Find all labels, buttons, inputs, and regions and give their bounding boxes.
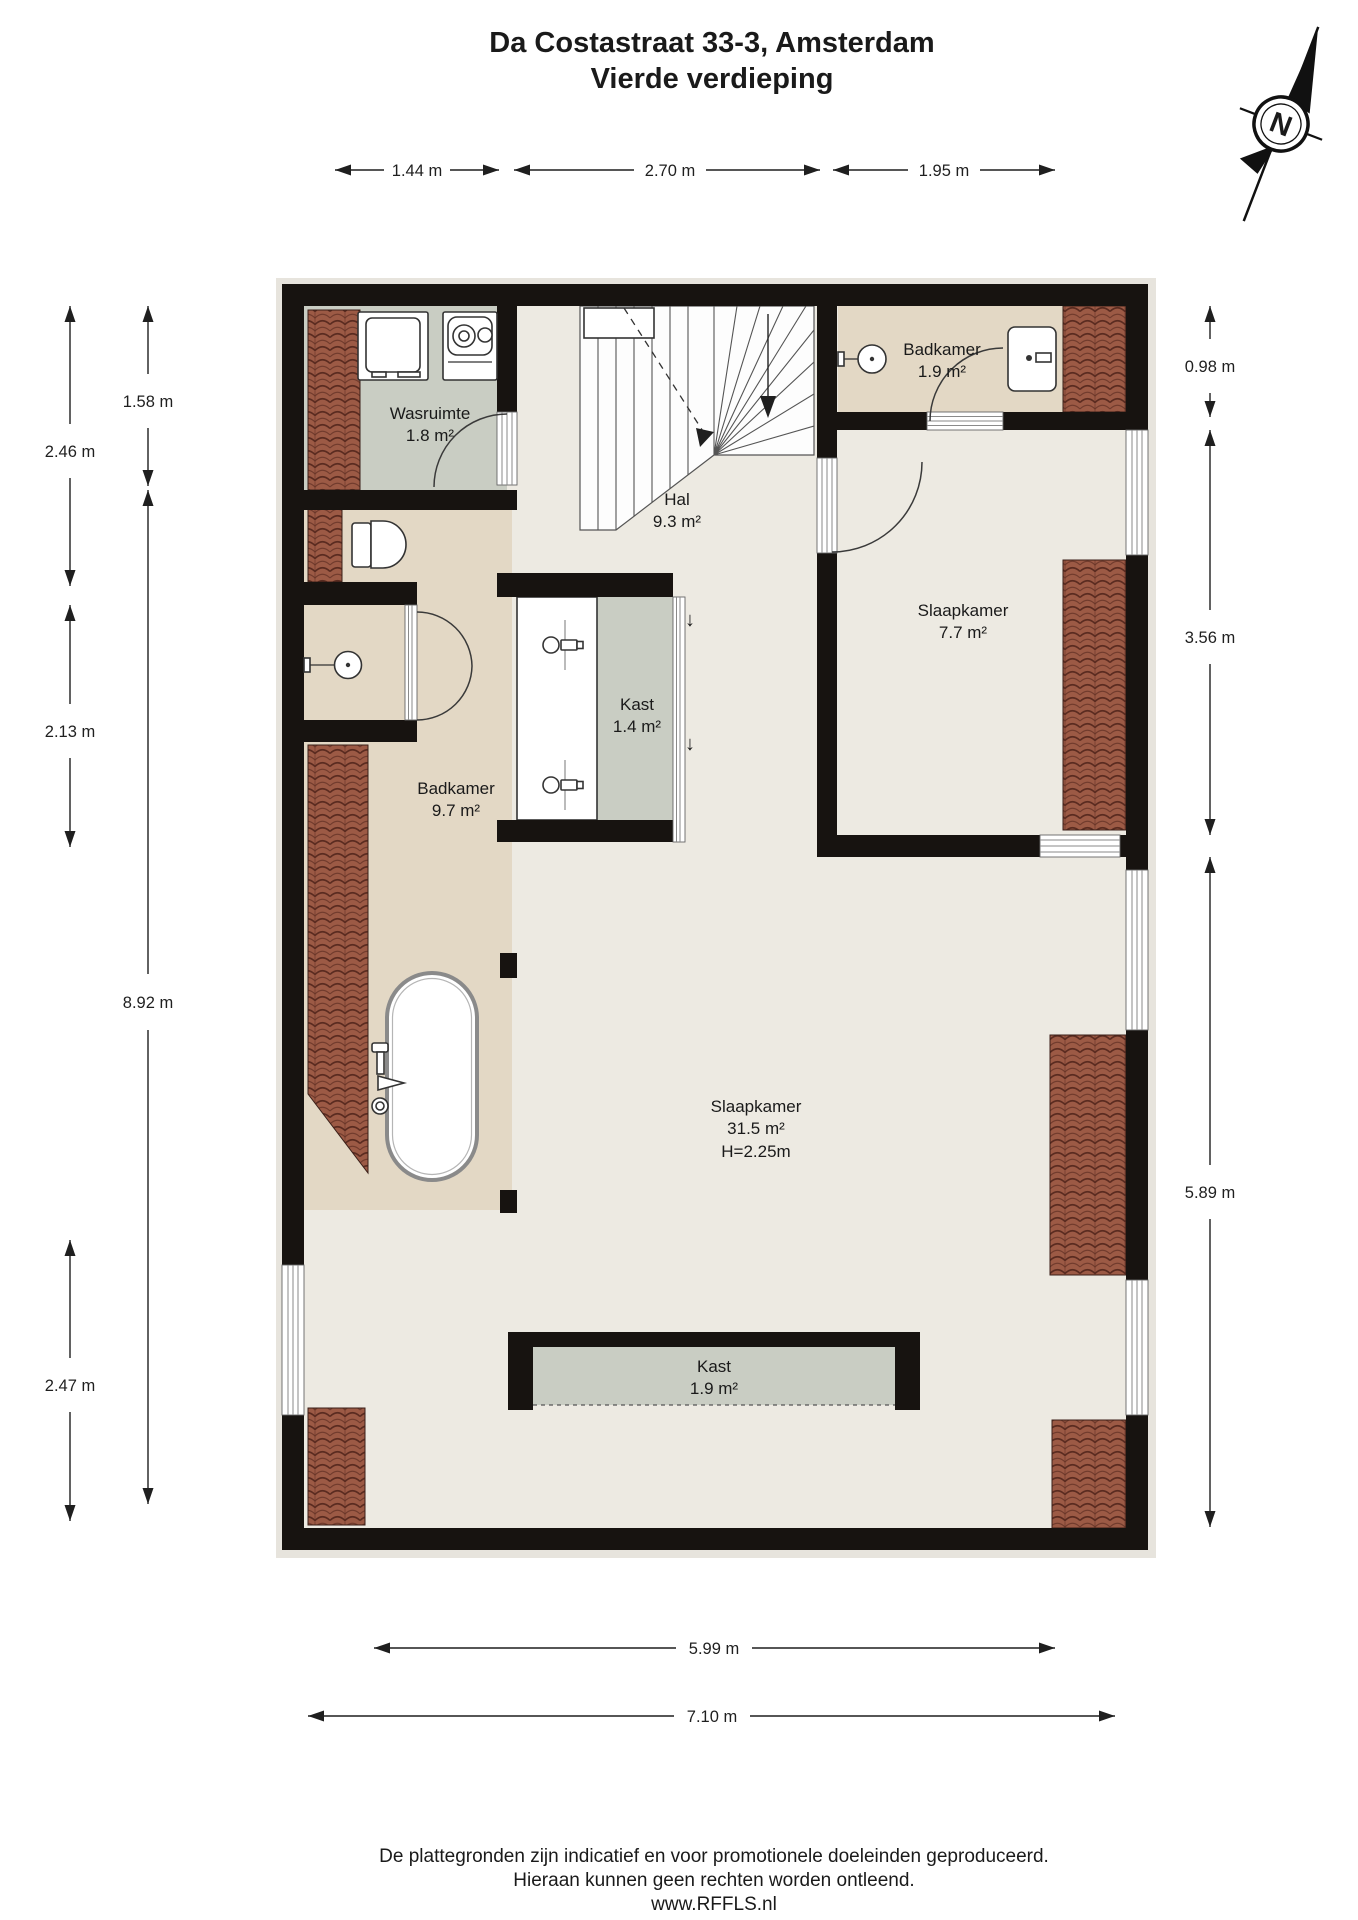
compass-west-tick (1240, 108, 1257, 114)
page-subtitle: Vierde verdieping (591, 63, 834, 95)
wall-hal-slaapkamer-lower (817, 553, 837, 857)
footer-line-2: Hieraan kunnen geen rechten worden ontle… (513, 1870, 914, 1891)
label-badkamer-groot-name: Badkamer (417, 779, 495, 798)
compass-rose: N (1203, 11, 1358, 237)
label-slaapkamer-groot-height: H=2.25m (721, 1142, 790, 1161)
dim-left-outer-3: 2.47 m (45, 1377, 95, 1395)
dim-right-1: 0.98 m (1185, 358, 1235, 376)
wall-kast-top (508, 1332, 920, 1347)
bathtub-icon (372, 973, 477, 1180)
wall-kast-right (895, 1332, 920, 1410)
label-hal-name: Hal (664, 490, 690, 509)
roof-slope-left-4 (308, 1408, 365, 1525)
window-right-2 (1126, 870, 1148, 1030)
slope-arrow-icon-1: ↓ (685, 609, 695, 631)
label-kast-slaapkamer-area: 1.9 m² (690, 1379, 739, 1398)
floor-plan-page: Da Costastraat 33-3, Amsterdam Vierde ve… (0, 0, 1358, 1920)
dim-top-3: 1.95 m (919, 162, 969, 180)
wall-stub-1 (500, 953, 517, 978)
dim-bottom-2: 7.10 m (687, 1708, 737, 1726)
label-wasruimte-name: Wasruimte (390, 404, 471, 423)
slaapkamer-klein-door-sill (817, 458, 837, 553)
footer-website: www.RFFLS.nl (650, 1894, 777, 1915)
dim-left-inner-2: 8.92 m (123, 994, 173, 1012)
wall-kast-left (508, 1332, 533, 1410)
shower-unit-icon (1008, 327, 1056, 391)
wall-wasruimte-bottom (304, 490, 517, 510)
label-kast-hal-area: 1.4 m² (613, 717, 662, 736)
opening-slaapkamer-wall (1040, 835, 1120, 857)
footer-line-1: De plattegronden zijn indicatief en voor… (379, 1846, 1049, 1867)
roof-slope-right-2 (1063, 560, 1126, 830)
floor-plan: Da Costastraat 33-3, Amsterdam Vierde ve… (0, 0, 1358, 1920)
dim-top-2: 2.70 m (645, 162, 695, 180)
label-badkamer-groot-area: 9.7 m² (432, 801, 481, 820)
toilet-icon (352, 521, 406, 568)
stair-landing (584, 308, 654, 338)
wall-vanity-bottom (497, 820, 685, 842)
dim-left-outer-2: 2.13 m (45, 723, 95, 741)
dim-left-inner-1: 1.58 m (123, 393, 173, 411)
label-badkamer-boven-name: Badkamer (903, 340, 981, 359)
kast-hal-sill (673, 597, 685, 842)
wall-outer-top (282, 284, 1148, 306)
washing-machine-icon (358, 312, 428, 380)
wall-outer-bottom (282, 1528, 1148, 1550)
wall-vanity-top (497, 573, 673, 597)
label-slaapkamer-groot-name: Slaapkamer (711, 1097, 802, 1116)
wasruimte-door-sill (497, 412, 517, 485)
roof-slope-right-3 (1050, 1035, 1126, 1275)
shower-door-sill (405, 605, 417, 720)
label-slaapkamer-klein-name: Slaapkamer (918, 601, 1009, 620)
roof-slope-right-4 (1052, 1420, 1126, 1528)
dim-top-1: 1.44 m (392, 162, 442, 180)
dim-left-outer-1: 2.46 m (45, 443, 95, 461)
label-wasruimte-area: 1.8 m² (406, 426, 455, 445)
roof-slope-right-1 (1063, 306, 1126, 412)
wall-shower-bottom (304, 720, 417, 742)
slope-arrow-icon-2: ↓ (685, 733, 695, 755)
compass-east-tick (1305, 133, 1322, 139)
page-title: Da Costastraat 33-3, Amsterdam (489, 27, 934, 59)
footer-disclaimer: De plattegronden zijn indicatief en voor… (379, 1846, 1049, 1915)
badkamer-boven-door-sill (927, 412, 1003, 430)
roof-slope-left-1 (308, 310, 360, 490)
wall-toilet-bottom (304, 582, 417, 605)
label-badkamer-boven-area: 1.9 m² (918, 362, 967, 381)
wall-wasruimte-right (497, 306, 517, 412)
wall-hal-slaapkamer-upper (817, 306, 837, 458)
dim-right-3: 5.89 m (1185, 1184, 1235, 1202)
dim-right-2: 3.56 m (1185, 629, 1235, 647)
label-kast-slaapkamer-name: Kast (697, 1357, 731, 1376)
label-hal-area: 9.3 m² (653, 512, 702, 531)
boiler-icon (443, 312, 497, 380)
window-right-1 (1126, 430, 1148, 555)
wall-stub-2 (500, 1190, 517, 1213)
window-right-3 (1126, 1280, 1148, 1415)
label-slaapkamer-groot-area: 31.5 m² (727, 1119, 785, 1138)
window-left (282, 1265, 304, 1415)
roof-slope-left-2 (308, 505, 342, 582)
dim-bottom-1: 5.99 m (689, 1640, 739, 1658)
label-kast-hal-name: Kast (620, 695, 654, 714)
label-slaapkamer-klein-area: 7.7 m² (939, 623, 988, 642)
